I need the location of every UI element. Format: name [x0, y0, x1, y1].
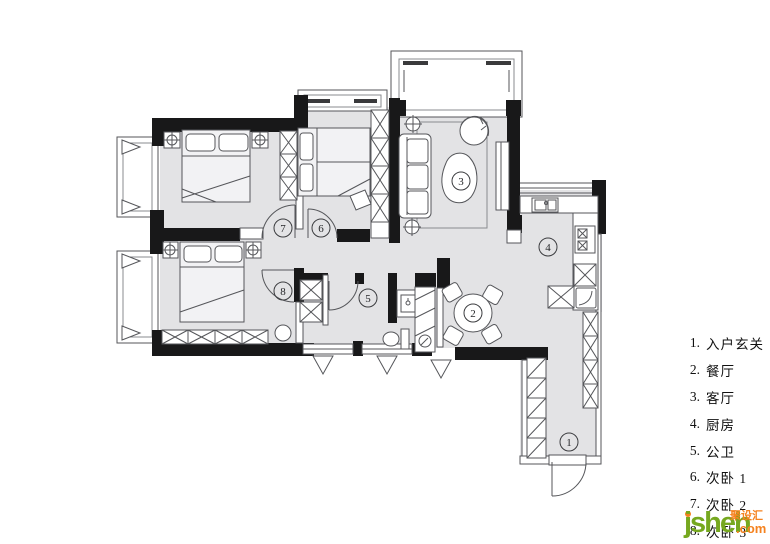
floorplan-page: 1 2 3 4 5 6 7 8 1. [0, 0, 770, 544]
svg-text:2: 2 [470, 308, 476, 320]
svg-text:6: 6 [318, 223, 324, 235]
tv-cabinet [496, 142, 509, 210]
svg-text:7: 7 [280, 223, 286, 235]
legend-item-number: 6. [679, 469, 700, 485]
svg-text:5: 5 [365, 293, 371, 305]
svg-text:4: 4 [545, 242, 551, 254]
fridge [576, 288, 596, 308]
bay-window-bedroom2 [117, 137, 158, 217]
sink [532, 198, 558, 212]
hall-cabinet [583, 312, 598, 408]
svg-text:3: 3 [458, 176, 464, 188]
shower-cabinet [415, 287, 435, 352]
floorplan-drawing: 1 2 3 4 5 6 7 8 [0, 0, 770, 544]
bay-window-bedroom3 [117, 251, 158, 343]
legend-item: 1. 入户玄关 [679, 330, 770, 357]
legend-item-label: 餐厅 [706, 360, 735, 380]
legend-item: 5. 公卫 [679, 437, 770, 464]
stool [275, 325, 291, 341]
legend-item-number: 2. [679, 362, 700, 378]
svg-text:1: 1 [566, 437, 572, 449]
legend-item-label: 厨房 [706, 414, 735, 434]
lounge-chair [460, 116, 489, 145]
legend-item: 4. 厨房 [679, 410, 770, 437]
legend-item: 6. 次卧 1 [679, 464, 770, 491]
legend-item-number: 5. [679, 443, 700, 459]
shoe-cabinet [527, 358, 546, 458]
balcony-living [391, 51, 522, 117]
legend-item-label: 次卧 1 [706, 467, 747, 487]
legend-item-number: 1. [679, 335, 700, 351]
jsheh-logo[interactable]: jsheh 聚设汇 .com [684, 505, 770, 544]
wardrobe-bedroom3 [162, 330, 268, 344]
bay-window-bedroom1 [298, 90, 387, 111]
logo-tld: .com [736, 521, 766, 536]
legend-item-number: 4. [679, 416, 700, 432]
svg-text:8: 8 [280, 286, 286, 298]
wardrobe-bedroom2 [280, 131, 297, 200]
legend-item-label: 客厅 [706, 387, 735, 407]
legend-item-label: 入户玄关 [706, 333, 764, 353]
sofa [399, 134, 431, 218]
stove [575, 226, 595, 253]
legend-item: 2. 餐厅 [679, 357, 770, 384]
wardrobe-bedroom1 [371, 110, 389, 238]
legend-item-label: 公卫 [706, 441, 735, 461]
legend-item-number: 3. [679, 389, 700, 405]
legend-item: 3. 客厅 [679, 384, 770, 411]
